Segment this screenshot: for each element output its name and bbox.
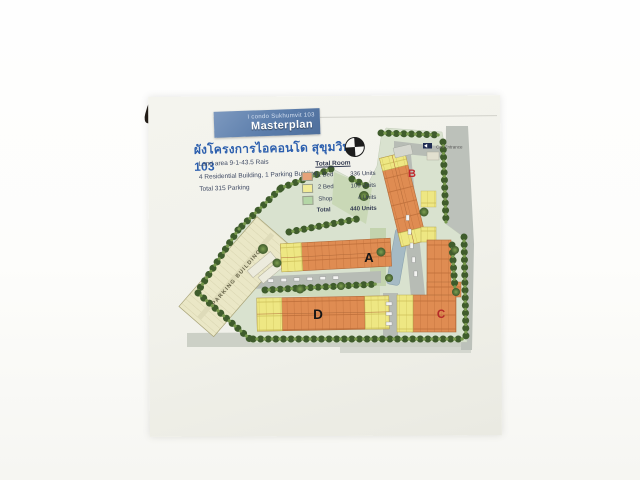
building-d-label: D — [313, 307, 323, 322]
guard-house — [427, 152, 439, 160]
building-b-label: B — [408, 168, 416, 180]
legend-label-2bed: 2 Bed — [318, 184, 342, 191]
parking-line: Total 315 Parking — [199, 182, 318, 193]
legend-total-label: Total — [317, 207, 341, 214]
legend-swatch-1bed — [302, 172, 313, 181]
legend-value-2bed: 100 Units — [342, 183, 376, 190]
legend-label-1bed: 1 Bed — [318, 172, 342, 179]
car-entrance-label: Car Entrance — [436, 145, 463, 150]
legend-swatch-shop — [302, 196, 313, 205]
legend-row-2bed: 2 Bed 100 Units — [302, 182, 376, 193]
building-d — [257, 296, 390, 331]
clubhouse-block — [421, 191, 436, 207]
land-info: Land area 9-1-43.5 Rais 4 Residential Bu… — [198, 157, 318, 198]
legend-label-shop: Shop — [318, 196, 342, 203]
building-c-label: C — [437, 309, 445, 321]
legend-total-value: 440 Units — [341, 206, 377, 213]
masterplan-label: Masterplan — [214, 118, 320, 134]
project-title-box: I condo Sukhumvit 103 Masterplan — [214, 108, 321, 138]
room-legend: Total Room 1 Bed 336 Units 2 Bed 100 Uni… — [301, 159, 377, 214]
legend-value-1bed: 336 Units — [342, 171, 376, 178]
bottom-road-edge — [340, 347, 471, 353]
legend-swatch-2bed — [302, 184, 313, 193]
legend-row-shop: Shop 4 Units — [302, 194, 376, 205]
photo-of-masterplan-document: PARKING BUILDING — [0, 0, 640, 480]
legend-row-1bed: 1 Bed 336 Units — [302, 170, 376, 181]
masterplan-drawing: PARKING BUILDING — [0, 0, 640, 480]
building-a-label: A — [364, 250, 374, 265]
building-a — [280, 238, 391, 272]
legend-value-shop: 4 Units — [342, 195, 376, 202]
buildings-line: 4 Residential Building, 1 Parking Buildi… — [199, 170, 318, 181]
legend-title: Total Room — [315, 159, 375, 168]
